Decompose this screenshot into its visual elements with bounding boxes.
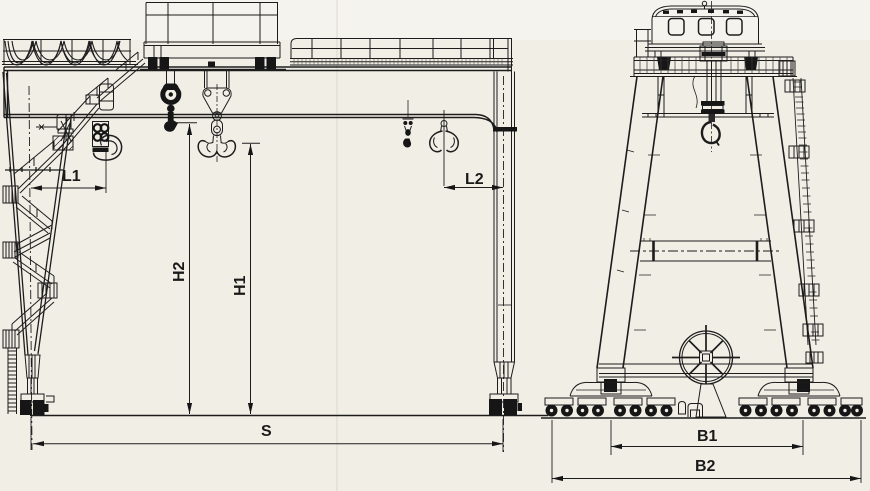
svg-text:H1: H1 [232,275,249,296]
svg-text:S: S [261,423,272,440]
svg-text:L2: L2 [465,171,484,188]
svg-text:B1: B1 [697,428,718,445]
svg-text:B2: B2 [695,458,716,475]
svg-text:H2: H2 [171,261,188,282]
svg-text:L1: L1 [62,168,81,185]
